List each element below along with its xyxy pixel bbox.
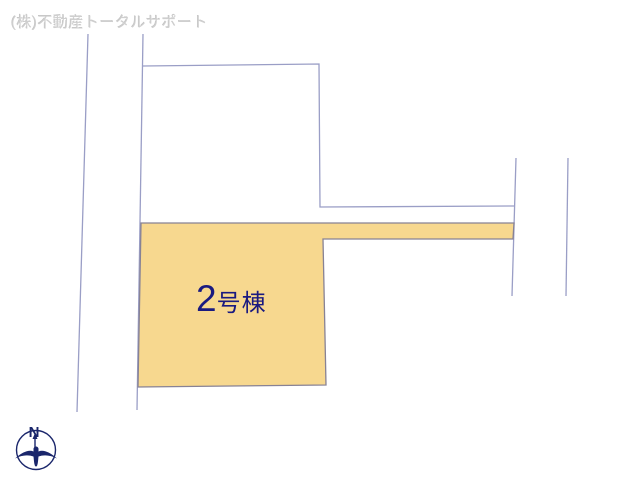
compass-icon: N [15, 424, 57, 470]
right-road-east-edge [566, 158, 568, 296]
lot2-label: 2号棟 [196, 280, 267, 317]
upper-lot-boundary [143, 64, 514, 207]
lot2-label-suffix: 号棟 [217, 292, 267, 316]
lot2-label-number: 2 [196, 280, 217, 317]
site-plan-drawing: N [0, 0, 640, 480]
site-plan-canvas: (株)不動産トータルサポート N 2号棟 [0, 0, 640, 480]
lot2-parcel [138, 223, 514, 387]
left-road-west-edge [77, 34, 88, 412]
